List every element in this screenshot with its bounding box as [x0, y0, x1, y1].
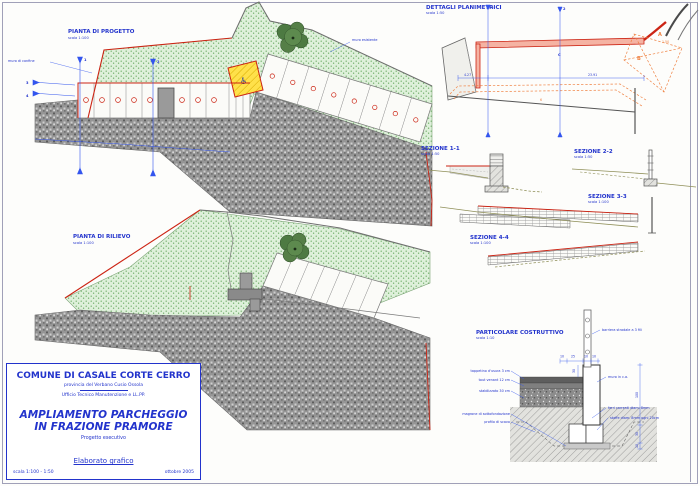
boundary-wall-label: muro di confine — [8, 59, 35, 63]
construction-detail-scale: scala 1:10 — [476, 336, 495, 340]
drawing-sheet: ♿ 1 2 3 4 PIANTA DI PROG — [0, 0, 700, 486]
plan-progetto-scale: scala 1:100 — [68, 36, 89, 40]
stair-opening — [158, 88, 174, 118]
dim-100: 100 — [635, 392, 639, 398]
excavation-label: profilo di scavo — [484, 420, 510, 424]
dim-right: 23.91 — [588, 73, 597, 77]
date-note: ottobre 2005 — [165, 470, 194, 475]
barrier-label: barriera stradale a 3 fili — [602, 328, 642, 332]
plan-progetto-drawing: ♿ 1 2 3 4 PIANTA DI PROG — [0, 0, 440, 235]
tree-icon — [280, 233, 309, 262]
section-4-drawing — [488, 242, 645, 267]
plan-rilievo-title: PIANTA DI RILIEVO — [73, 234, 131, 240]
zone-c-label: C — [558, 53, 561, 57]
section-3-scale: scala 1:100 — [588, 200, 609, 204]
dim-30-footing: 30 — [635, 432, 639, 436]
dim-10c: 10 — [592, 355, 596, 359]
separator-line — [80, 390, 128, 391]
project-subtitle: Progetto esecutivo — [7, 436, 200, 441]
road-edge-curve — [666, 4, 688, 36]
wall-label: muro in c.a. — [608, 375, 628, 379]
road-edge-curve-2 — [678, 10, 698, 40]
detail-mark-2: 2 — [563, 7, 566, 11]
existing-ramp-outline — [442, 38, 476, 100]
rebar-label: ferri correnti diam. 8mm — [608, 406, 650, 410]
stabilized-layer — [520, 389, 583, 407]
section-3-drawing — [440, 197, 656, 233]
section-4-scale: scala 1:100 — [470, 241, 491, 245]
wear-layer-label: tappetino d'usura 3 cm — [471, 369, 511, 373]
construction-detail-drawing: PARTICOLARE COSTRUTTIVO scala 1:10 — [440, 310, 700, 486]
dim-corner: 1.50 — [662, 40, 669, 44]
dim-30-ledge: 30 — [572, 369, 576, 373]
existing-wall-label: muro esistente — [352, 38, 377, 42]
lean-concrete — [564, 443, 610, 449]
section-mark-4: 4 — [26, 94, 29, 98]
scales-note: scala 1:100 - 1:50 — [13, 470, 54, 475]
project-title-line1: AMPLIAMENTO PARCHEGGIO — [7, 409, 200, 421]
office-line: Ufficio Tecnico Manutenzione e LL.PP. — [7, 393, 200, 398]
dimension-line — [458, 75, 644, 81]
plan-rilievo-scale: scala 1:100 — [73, 241, 94, 245]
section-1-drawing — [428, 154, 542, 192]
corner-wall-red — [644, 22, 666, 40]
detail-plan-scale: scala 1:50 — [426, 11, 445, 15]
section-verticals — [486, 5, 562, 137]
stabilized-label: stabilizzato 30 cm — [479, 389, 511, 393]
disabled-parking-icon: ♿ — [240, 77, 248, 87]
zone-b-label: B — [637, 56, 641, 62]
plan-progetto-title: PIANTA DI PROGETTO — [68, 29, 135, 35]
document-type: Elaborato grafico — [7, 457, 200, 465]
dim-25: 25 — [571, 355, 575, 359]
note-6-label: 6 — [540, 98, 542, 102]
dim-10-magrone: 10 — [635, 444, 639, 448]
project-title-line2: IN FRAZIONE PRAMORE — [7, 421, 200, 433]
detail-plan-drawing: DETTAGLI PLANIMETRICI scala 1:50 1 2 — [420, 0, 700, 145]
footing-block-right — [586, 424, 603, 443]
zone-a-label: A — [658, 32, 662, 38]
dim-left: 4.27 — [464, 73, 471, 77]
lean-concrete-label: magrone di sottofondazione — [462, 412, 510, 416]
concrete-wall — [583, 365, 600, 425]
dim-10b: 10 — [584, 355, 588, 359]
sections-drawing: SEZIONE 1-1 scala 1:50 SEZIONE 2-2 scala… — [420, 145, 700, 320]
wear-layer — [520, 377, 583, 383]
stirrups-label: staffe diam. 8mm ogni 20cm — [610, 416, 660, 420]
new-wall-return — [476, 44, 480, 88]
municipality-name: COMUNE DI CASALE CORTE CERRO — [7, 371, 200, 381]
footing-block-left — [569, 424, 586, 443]
parking-stall-row — [78, 83, 250, 118]
tout-venant-layer — [520, 383, 583, 389]
section-2-scale: scala 1:50 — [574, 155, 593, 159]
section-mark-3: 3 — [26, 81, 29, 85]
section-1-scale: scala 1:50 — [421, 152, 440, 156]
tout-venant-label: tout venant 12 cm — [479, 378, 511, 382]
title-block: COMUNE DI CASALE CORTE CERRO provincia d… — [6, 363, 201, 480]
section-mark-1: 1 — [84, 58, 87, 62]
province-line: provincia del Verbano Cusio Ossola — [7, 383, 200, 388]
dim-10a: 10 — [560, 355, 564, 359]
disabled-parking-stall: ♿ — [228, 61, 263, 97]
